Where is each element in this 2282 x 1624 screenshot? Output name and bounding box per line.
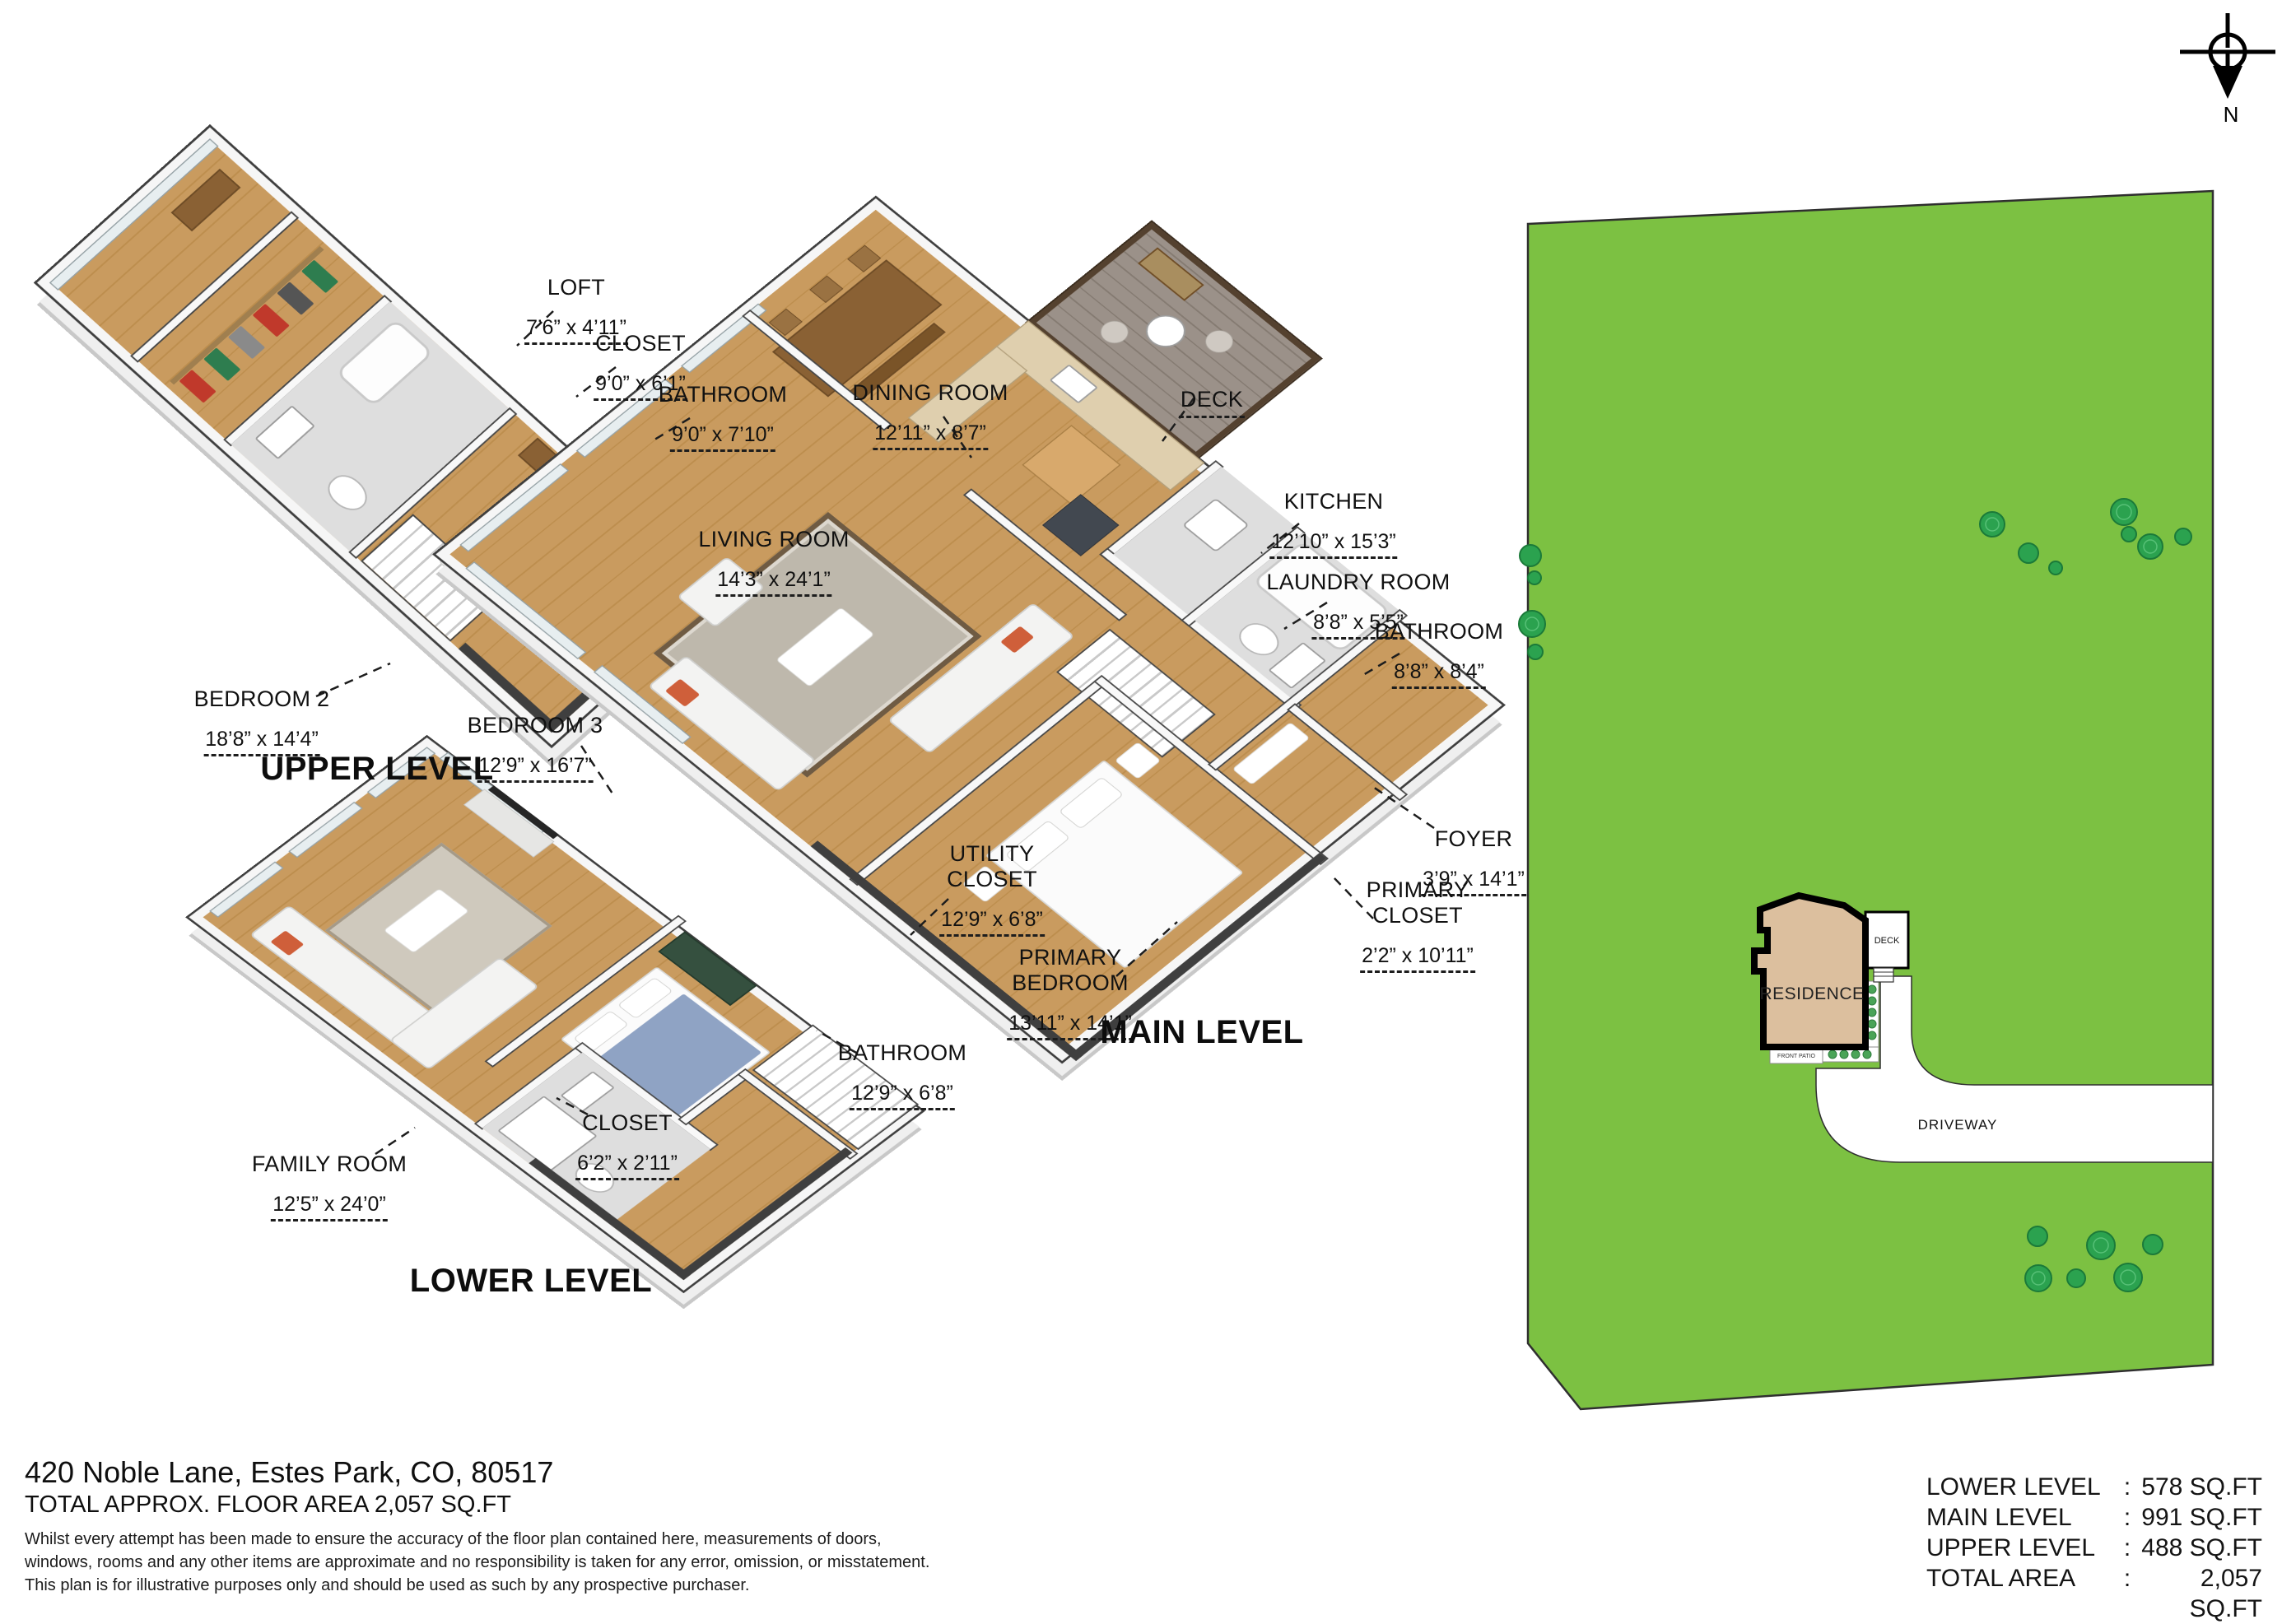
- room-label-living: LIVING ROOM 14’3” x 24’1”: [698, 512, 849, 597]
- deck-table: [1138, 309, 1194, 354]
- disclaimer-text: Whilst every attempt has been made to en…: [25, 1528, 929, 1597]
- main-level-title: MAIN LEVEL: [1100, 1014, 1303, 1051]
- garden-bed: [1823, 1047, 1879, 1062]
- loft-wall: [133, 213, 296, 361]
- clothes-item: [301, 260, 338, 294]
- room-label-family: FAMILY ROOM 12’5” x 24’0”: [252, 1137, 407, 1221]
- site-deck-label: DECK: [1874, 936, 1900, 946]
- clothes-item: [203, 347, 240, 381]
- front-patio-label: FRONT PATIO: [1777, 1054, 1815, 1059]
- clothes-item: [179, 370, 216, 403]
- dark-wall-edge: [677, 1147, 853, 1280]
- room-label-bathroom-lower: BATHROOM 12’9” x 6’8”: [838, 1026, 966, 1110]
- window-strip: [211, 863, 282, 916]
- garden-bushes: [1828, 985, 1876, 1059]
- driveway-surface: [1816, 976, 2213, 1162]
- upper-level-title: UPPER LEVEL: [260, 751, 493, 788]
- room-label-utility-closet: UTILITY CLOSET 12’9” x 6’8”: [939, 826, 1045, 937]
- lower-level-title: LOWER LEVEL: [410, 1263, 652, 1300]
- compass-icon: [2180, 13, 2275, 99]
- room-label-bathroom-upper: BATHROOM 9’0” x 7’10”: [659, 367, 787, 452]
- deck-bench: [1138, 247, 1204, 300]
- site-deck: [1865, 912, 1908, 968]
- room-label-bathroom-main: BATHROOM 8’8” x 8’4”: [1375, 604, 1503, 689]
- compass-n-label: N: [2224, 102, 2239, 127]
- room-label-kitchen: KITCHEN 12’10” x 15’3”: [1269, 474, 1397, 559]
- lot-boundary: [1528, 191, 2213, 1409]
- trees: [1519, 499, 2191, 1291]
- hall-wall: [966, 491, 1125, 620]
- table-row: LOWER LEVEL : 578 SQ.FT: [1926, 1472, 2262, 1502]
- deck-structure: [1027, 222, 1320, 459]
- clothes-item: [277, 282, 314, 315]
- tree-highlights: [1525, 505, 2157, 1285]
- property-address: 420 Noble Lane, Estes Park, CO, 80517: [25, 1455, 553, 1490]
- residence-label: RESIDENCE: [1759, 984, 1864, 1003]
- kitchen-island: [1023, 426, 1119, 504]
- window-strip: [290, 803, 361, 857]
- foyer-wall: [1289, 705, 1405, 799]
- garden-bed: [1865, 981, 1879, 1049]
- table-row: TOTAL AREA : 2,057 SQ.FT: [1926, 1563, 2262, 1624]
- deck-chair: [1095, 316, 1134, 348]
- clothes-item: [253, 304, 290, 337]
- front-patio: [1770, 1047, 1823, 1063]
- refrigerator: [1042, 494, 1119, 556]
- residence-footprint: [1754, 896, 1865, 1047]
- clothes-item: [228, 326, 265, 360]
- site-deck-stairs: [1874, 968, 1893, 982]
- closet-rod: [170, 246, 324, 384]
- total-floor-area-line: TOTAL APPROX. FLOOR AREA 2,057 SQ.FT: [25, 1491, 511, 1519]
- closet-shelf: [1232, 722, 1311, 785]
- room-label-closet-lower: CLOSET 6’2” x 2’11”: [575, 1096, 679, 1180]
- room-label-dining: DINING ROOM 12’11” x 8’7”: [852, 365, 1008, 450]
- room-label-primary-closet: PRIMARY CLOSET 2’2” x 10’11”: [1360, 863, 1475, 973]
- table-row: MAIN LEVEL : 991 SQ.FT: [1926, 1502, 2262, 1533]
- table-row: UPPER LEVEL : 488 SQ.FT: [1926, 1533, 2262, 1563]
- driveway-label: DRIVEWAY: [1918, 1117, 1998, 1133]
- area-summary-table: LOWER LEVEL : 578 SQ.FT MAIN LEVEL : 991…: [1926, 1472, 2262, 1624]
- floor-plan-sheet: { "meta": { "address": "420 Noble Lane, …: [0, 0, 2282, 1613]
- room-label-bedroom2: BEDROOM 2 18’8” x 14’4”: [194, 672, 330, 756]
- deck-chair: [1199, 325, 1239, 357]
- room-label-deck: DECK: [1179, 372, 1245, 448]
